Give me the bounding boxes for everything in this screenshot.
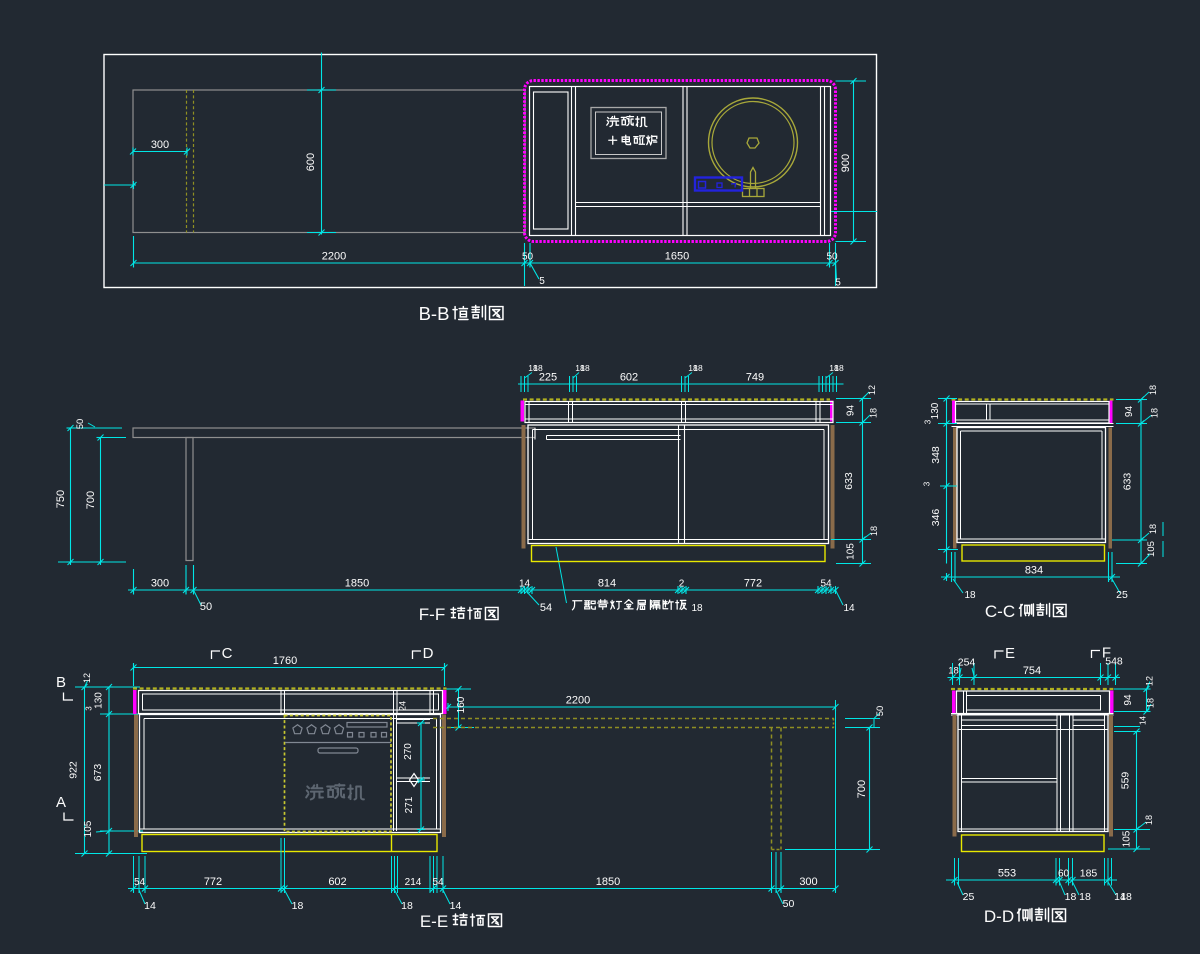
svg-text:105: 105: [1146, 541, 1157, 557]
svg-text:14: 14: [1139, 716, 1148, 725]
svg-text:225: 225: [539, 372, 557, 384]
svg-text:700: 700: [856, 780, 868, 798]
svg-text:559: 559: [1120, 772, 1132, 790]
svg-text:18: 18: [1079, 891, 1091, 903]
svg-text:18: 18: [533, 363, 543, 373]
svg-text:50: 50: [826, 252, 838, 263]
svg-text:1850: 1850: [345, 578, 369, 590]
svg-text:2200: 2200: [322, 251, 346, 263]
svg-text:18: 18: [292, 900, 304, 912]
svg-text:2: 2: [679, 579, 685, 590]
svg-text:18: 18: [869, 526, 879, 536]
svg-text:18: 18: [869, 408, 879, 418]
svg-text:12: 12: [82, 673, 92, 683]
svg-text:14: 14: [450, 900, 462, 912]
svg-text:18: 18: [1148, 385, 1158, 395]
svg-text:5: 5: [539, 276, 545, 287]
svg-text:814: 814: [598, 578, 616, 590]
svg-text:3: 3: [923, 481, 932, 486]
svg-text:18: 18: [693, 363, 703, 373]
svg-text:14: 14: [843, 603, 855, 614]
svg-text:300: 300: [151, 139, 169, 151]
svg-text:54: 54: [432, 877, 444, 888]
svg-text:105: 105: [846, 543, 857, 560]
svg-text:602: 602: [620, 372, 638, 384]
svg-text:25: 25: [1116, 589, 1128, 601]
svg-text:60: 60: [1058, 869, 1070, 880]
svg-text:185: 185: [1080, 868, 1098, 880]
svg-text:270: 270: [403, 743, 414, 760]
svg-text:50: 50: [783, 898, 795, 910]
svg-text:94: 94: [1124, 406, 1135, 418]
svg-text:50: 50: [522, 252, 534, 263]
svg-text:750: 750: [55, 490, 67, 508]
svg-text:50: 50: [75, 419, 86, 430]
svg-text:D: D: [423, 645, 434, 662]
svg-text:C: C: [222, 645, 233, 662]
svg-text:300: 300: [799, 876, 817, 888]
svg-text:346: 346: [930, 509, 942, 527]
svg-text:C-C: C-C: [985, 602, 1015, 621]
svg-text:673: 673: [92, 764, 104, 782]
svg-text:12: 12: [867, 385, 877, 395]
svg-text:18: 18: [834, 363, 844, 373]
svg-text:12: 12: [1145, 676, 1155, 686]
svg-text:553: 553: [998, 868, 1016, 880]
svg-text:772: 772: [744, 578, 762, 590]
svg-text:54: 54: [820, 579, 832, 590]
svg-text:1850: 1850: [596, 876, 620, 888]
svg-text:18: 18: [1144, 815, 1154, 825]
svg-text:1650: 1650: [665, 251, 689, 263]
svg-text:834: 834: [1025, 565, 1043, 577]
svg-text:772: 772: [204, 876, 222, 888]
svg-text:5: 5: [835, 278, 841, 289]
svg-text:18: 18: [1146, 698, 1156, 708]
svg-text:130: 130: [930, 402, 941, 419]
svg-text:E-E: E-E: [420, 912, 448, 931]
svg-text:25: 25: [963, 891, 975, 903]
svg-text:18: 18: [691, 603, 703, 614]
svg-text:18: 18: [1065, 891, 1077, 903]
svg-text:50: 50: [875, 706, 886, 717]
svg-text:700: 700: [85, 491, 97, 509]
svg-text:24: 24: [398, 701, 408, 711]
svg-text:105: 105: [1122, 830, 1133, 847]
svg-text:18: 18: [1120, 891, 1132, 903]
svg-text:50: 50: [200, 601, 212, 613]
svg-text:754: 754: [1023, 665, 1041, 677]
svg-text:3: 3: [924, 419, 933, 424]
svg-text:214: 214: [405, 877, 422, 888]
svg-text:18: 18: [1148, 524, 1158, 534]
svg-text:348: 348: [930, 446, 942, 464]
svg-text:900: 900: [840, 154, 852, 172]
svg-text:602: 602: [328, 876, 346, 888]
svg-text:1760: 1760: [273, 655, 297, 667]
svg-text:922: 922: [68, 761, 80, 779]
svg-text:18: 18: [964, 590, 976, 601]
svg-text:B-B: B-B: [419, 303, 450, 324]
svg-text:3: 3: [85, 706, 94, 711]
svg-text:B: B: [56, 674, 66, 691]
svg-text:18: 18: [580, 363, 590, 373]
svg-text:633: 633: [1122, 473, 1134, 491]
svg-text:600: 600: [305, 153, 317, 171]
svg-text:160: 160: [456, 696, 467, 713]
svg-text:300: 300: [151, 578, 169, 590]
svg-text:105: 105: [83, 820, 94, 837]
svg-text:94: 94: [1123, 694, 1134, 706]
svg-text:254: 254: [958, 657, 976, 669]
svg-text:548: 548: [1105, 656, 1123, 668]
svg-text:14: 14: [144, 900, 156, 912]
svg-text:F-F: F-F: [419, 605, 445, 624]
svg-text:18: 18: [401, 900, 413, 912]
svg-text:14: 14: [519, 579, 531, 590]
svg-text:633: 633: [843, 472, 855, 490]
svg-text:E: E: [1005, 645, 1015, 662]
svg-text:54: 54: [134, 877, 146, 888]
svg-text:A: A: [56, 794, 66, 811]
svg-text:54: 54: [540, 602, 552, 614]
svg-text:2200: 2200: [566, 695, 590, 707]
svg-text:271: 271: [404, 796, 415, 813]
svg-text:18: 18: [1150, 408, 1160, 418]
svg-text:130: 130: [94, 692, 105, 709]
svg-text:D-D: D-D: [984, 907, 1014, 926]
svg-text:94: 94: [846, 405, 857, 417]
svg-text:749: 749: [746, 372, 764, 384]
